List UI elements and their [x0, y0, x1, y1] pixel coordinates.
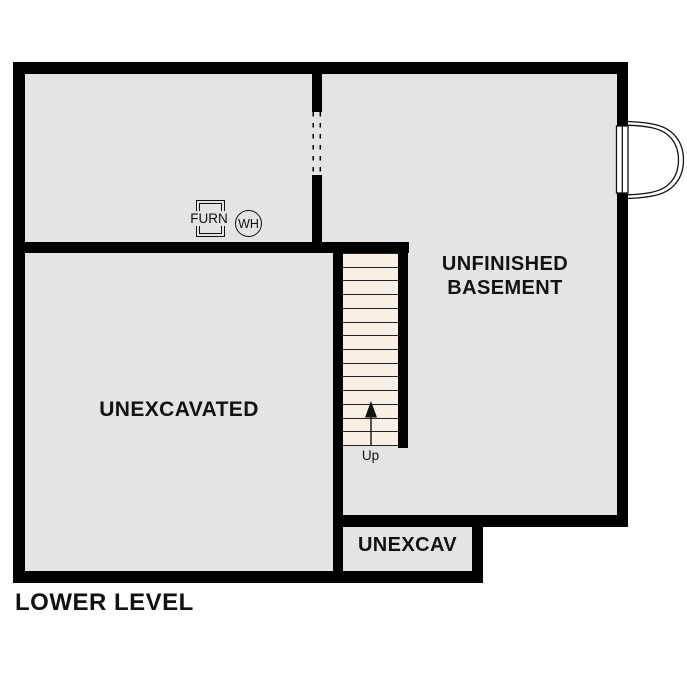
wall-furnace-room-bottom [13, 242, 409, 253]
label-unexcavated: UNEXCAVATED [29, 398, 329, 422]
doorway-dashed-opening [312, 112, 322, 176]
water-heater-icon: WH [235, 210, 262, 237]
stair-tread [343, 295, 398, 309]
stair-tread [343, 377, 398, 391]
stair-tread [343, 364, 398, 378]
stair-tread [343, 336, 398, 350]
stair-tread [343, 323, 398, 337]
stair-tread [343, 268, 398, 282]
wall-stairs-left [333, 242, 343, 582]
stair-treads [343, 253, 398, 446]
wall-unexcav-right [472, 527, 483, 583]
stair-tread [343, 432, 398, 446]
wall-top [13, 62, 628, 74]
floor-plan-lower-level: FURN WH UNFINISHED BASEMENT UNEXCAVATED … [0, 0, 687, 687]
wall-bottom [13, 571, 483, 583]
wall-basement-bottom [333, 515, 628, 527]
stair-tread [343, 405, 398, 419]
stairs-up-label: Up [345, 448, 396, 463]
stair-tread [343, 350, 398, 364]
stair-tread [343, 281, 398, 295]
wall-left [13, 62, 25, 582]
furnace-room-floor [25, 74, 312, 242]
wall-divider-upper [312, 74, 322, 112]
water-heater-label: WH [238, 217, 259, 231]
wall-right [617, 62, 628, 527]
stair-tread [343, 419, 398, 433]
label-unexcav: UNEXCAV [343, 533, 472, 557]
stair-tread [343, 391, 398, 405]
furnace-label: FURN [182, 211, 236, 226]
stair-tread [343, 254, 398, 268]
label-unfinished-basement: UNFINISHED BASEMENT [405, 252, 605, 300]
page-title: LOWER LEVEL [15, 589, 194, 617]
wall-divider-lower [312, 175, 322, 242]
stair-tread [343, 309, 398, 323]
